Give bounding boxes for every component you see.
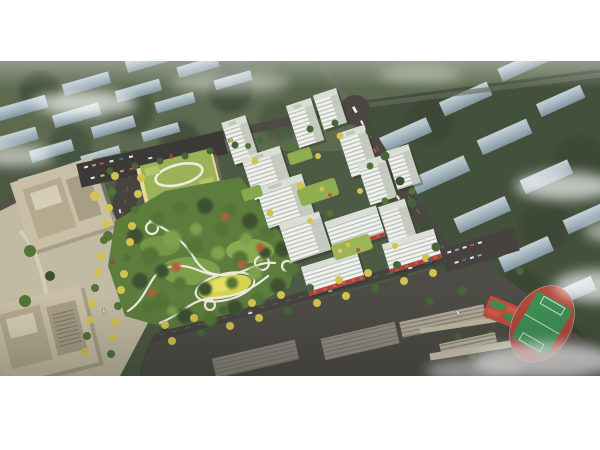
render-canvas	[0, 61, 600, 376]
aerial-render	[0, 61, 600, 376]
architectural-rendering-page	[0, 0, 600, 450]
bottom-vignette	[0, 61, 600, 376]
